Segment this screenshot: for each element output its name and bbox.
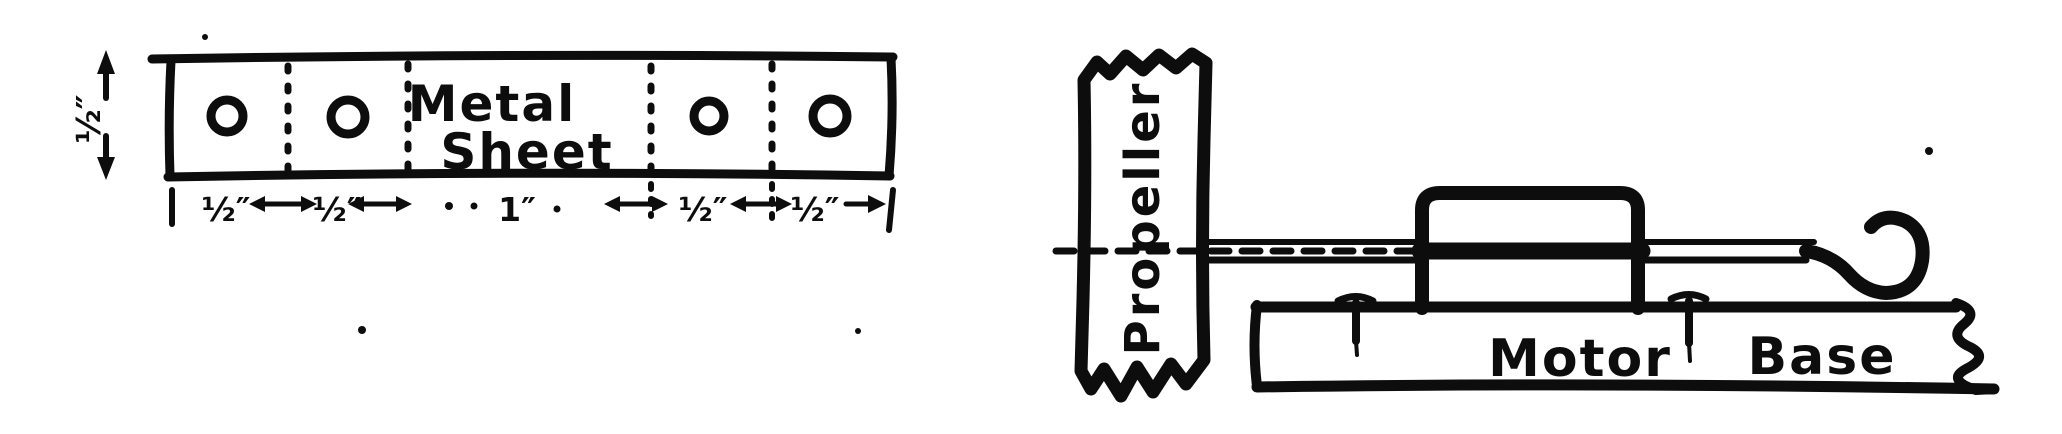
width-dimension-row: ½″ ½″ 1″ ½″ ½″ [172, 184, 893, 230]
metal-sheet-figure: Metal Sheet ½″ ½″ ½″ 1″ ½″ ½″ [69, 50, 893, 230]
hole-1 [211, 100, 243, 132]
base-torn-edge [1956, 303, 1994, 390]
down-arrowhead-icon [97, 157, 115, 180]
double-arrow-icon-4 [730, 196, 792, 212]
sheet-label-line2: Sheet [440, 123, 613, 181]
sheet-outline-right [889, 58, 892, 176]
hole-4 [813, 99, 847, 133]
up-arrowhead-icon [97, 50, 115, 74]
base-label: Base [1748, 327, 1897, 387]
right-arrow-icon [846, 195, 886, 213]
winding-hook [1806, 218, 1923, 293]
width-dim-label-2: ½″ [313, 190, 362, 229]
scanned-diagram-page: Metal Sheet ½″ ½″ ½″ 1″ ½″ ½″ [0, 0, 2062, 434]
dim-dash-dot-3 [554, 206, 561, 213]
width-dim-label-3: 1″ [498, 190, 536, 229]
motor-label: Motor [1488, 329, 1672, 389]
height-dimension: ½″ [69, 50, 115, 180]
base-left-edge [1255, 305, 1258, 386]
double-arrow-icon-3 [604, 196, 668, 212]
width-dim-label-5: ½″ [791, 190, 840, 229]
motor-assembly-figure: Propeller Motor [1056, 54, 1994, 396]
ink-speck [855, 328, 861, 334]
sheet-outline-top [152, 55, 893, 59]
hole-3 [694, 101, 724, 131]
ink-speck [202, 34, 208, 40]
diagram-drawing: Metal Sheet ½″ ½″ ½″ 1″ ½″ ½″ [0, 0, 2062, 434]
dim-dash-dot-1 [445, 202, 453, 210]
width-dim-label-1: ½″ [202, 190, 251, 229]
dim-tick-right [889, 190, 893, 230]
width-dim-label-4: ½″ [679, 190, 728, 229]
double-arrow-icon-1 [249, 196, 317, 212]
ink-speck [1925, 147, 1933, 155]
sheet-outline-left [169, 61, 171, 176]
propeller-label: Propeller [1115, 81, 1171, 356]
hole-2 [331, 100, 365, 134]
ink-speck [358, 326, 366, 334]
height-dimension-label: ½″ [69, 95, 108, 144]
dim-dash-dot-2 [471, 203, 478, 210]
